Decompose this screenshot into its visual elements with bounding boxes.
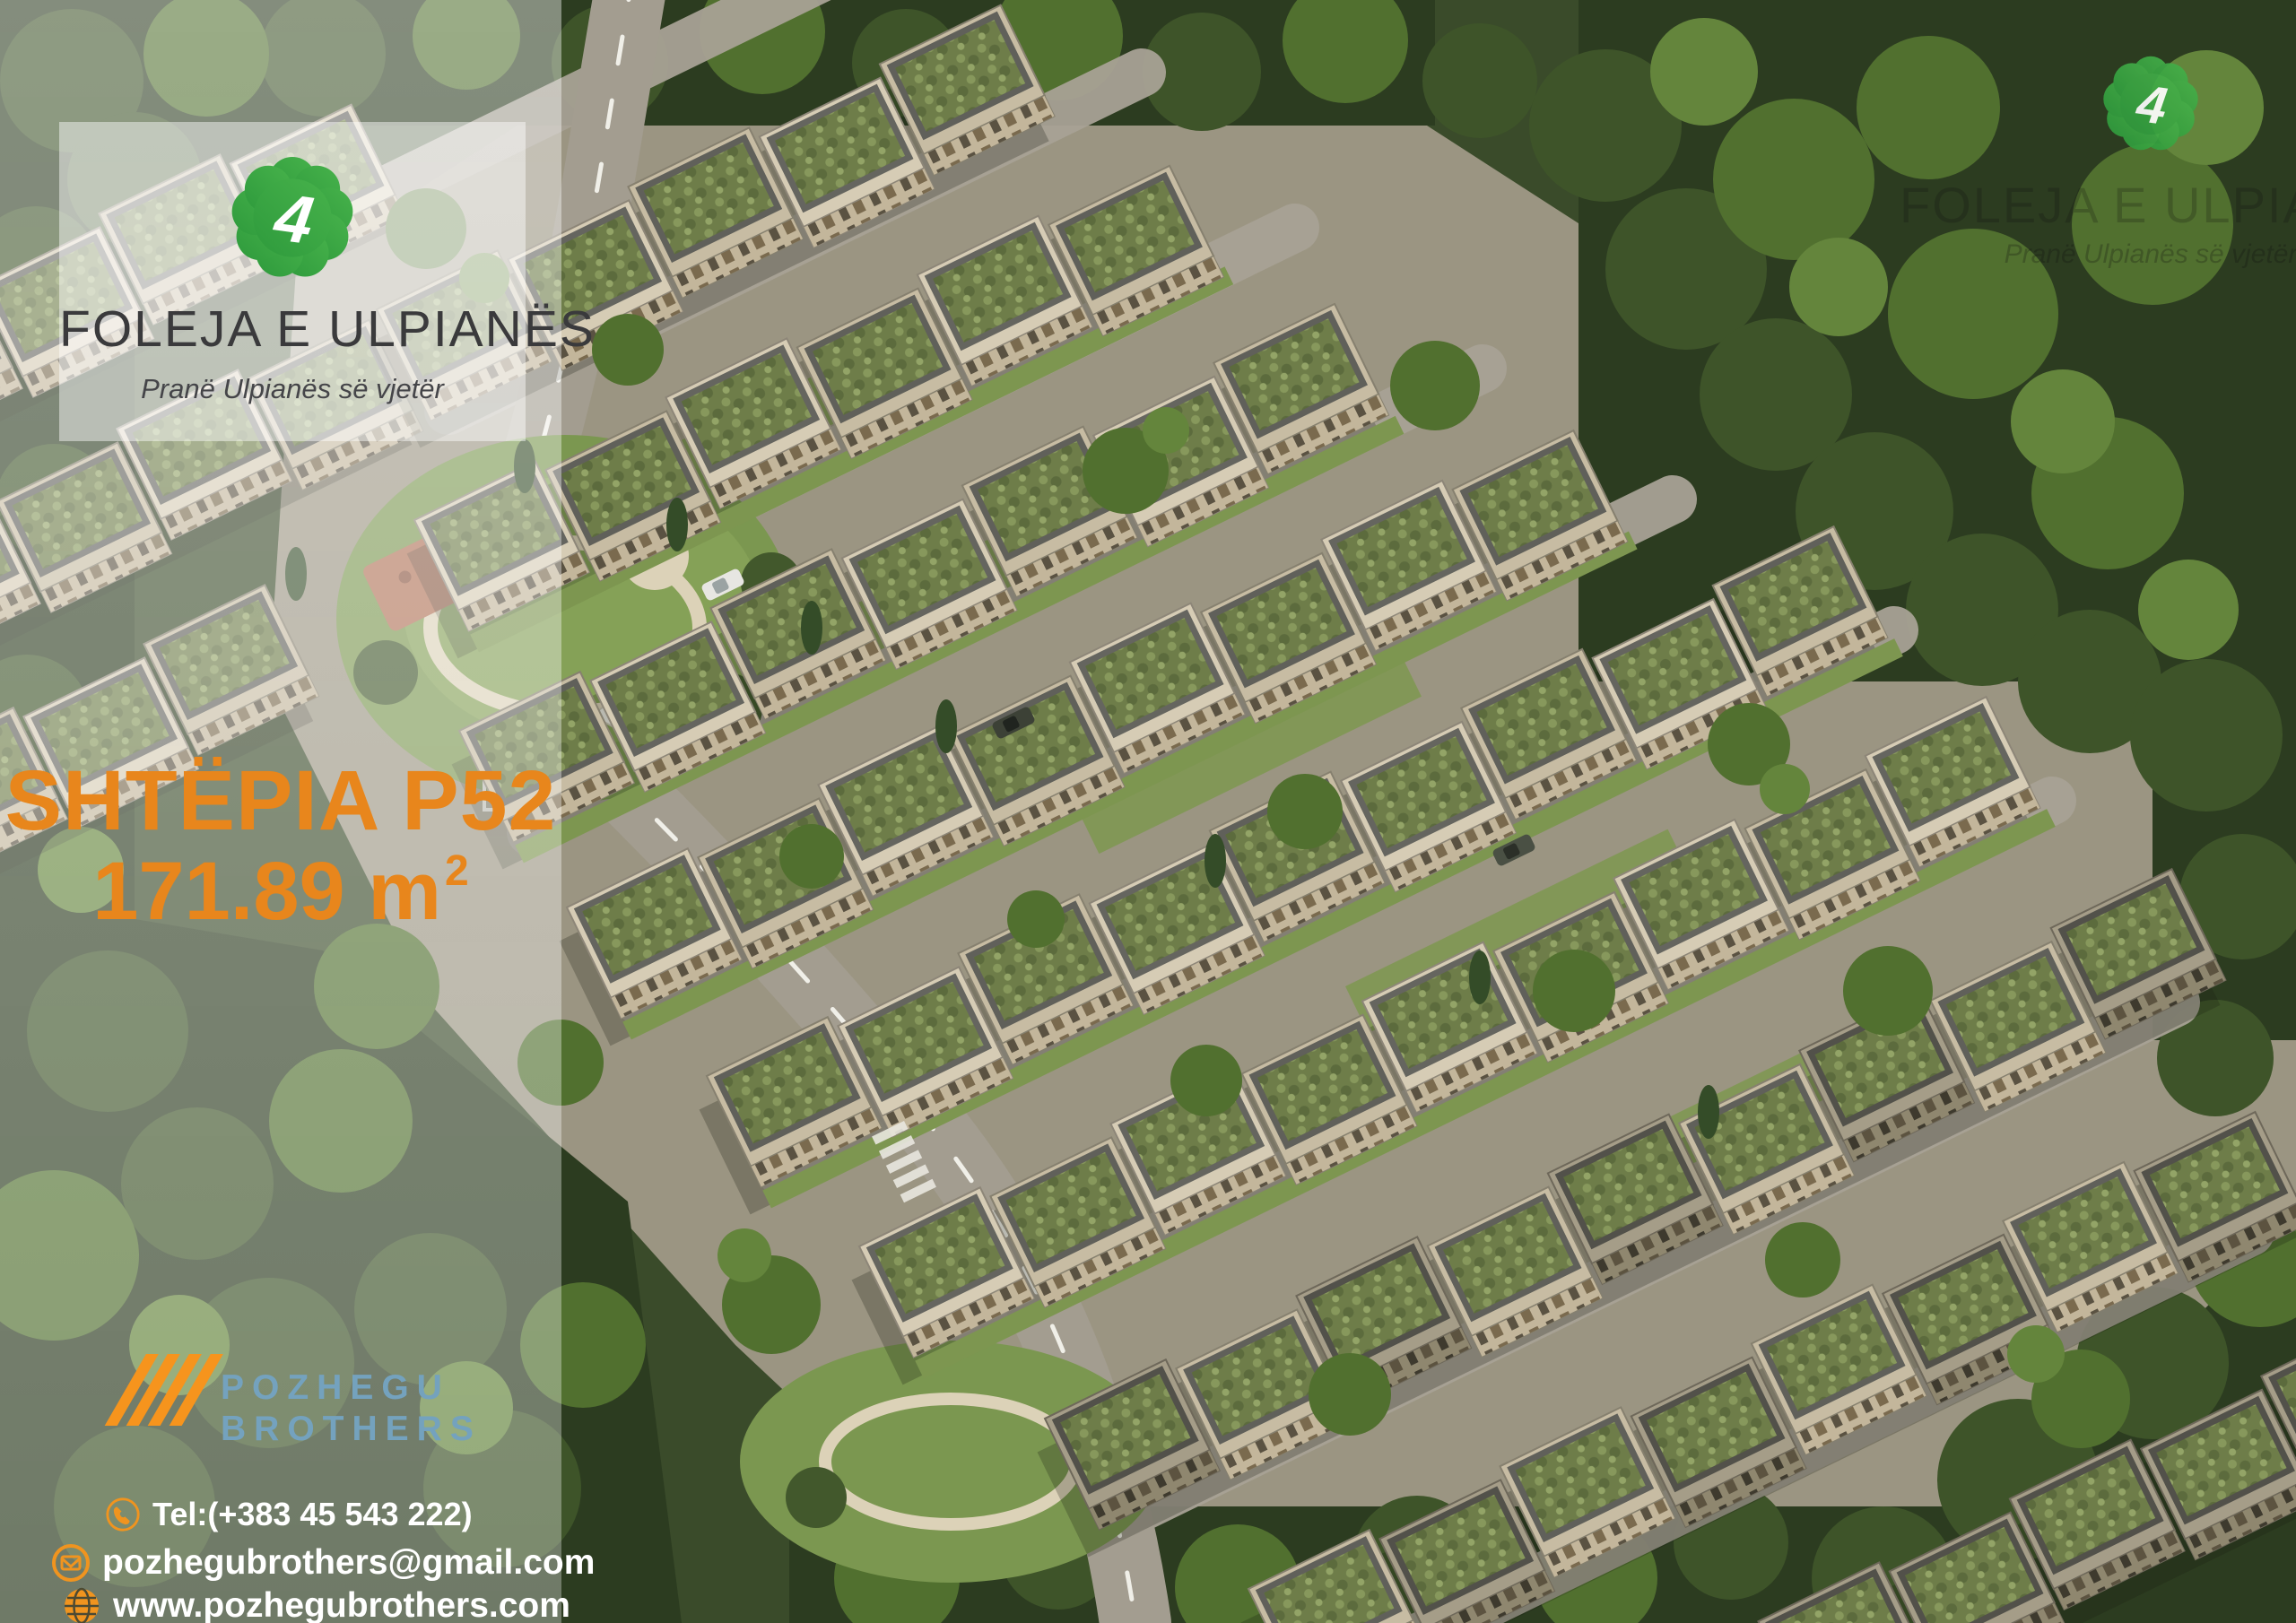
diagonal-stripes-icon (106, 1352, 222, 1429)
top-right-watermark: 4 FOLEJA E ULPIANËS Pranë Ulpianës së vj… (1900, 56, 2296, 270)
area-exponent: 2 (445, 847, 469, 895)
developer-name-top: POZHEGU (221, 1368, 450, 1408)
phone-icon (104, 1496, 142, 1533)
project-logo-card: 4 FOLEJA E ULPIANËS Pranë Ulpianës së vj… (59, 122, 526, 441)
clover-flower-icon: 4 (2102, 56, 2199, 152)
contact-phone-row: Tel:(+383 45 543 222) (104, 1496, 473, 1533)
property-poster: 4 FOLEJA E ULPIANËS Pranë Ulpianës së vj… (0, 0, 2296, 1623)
globe-icon (61, 1585, 102, 1623)
website-url: www.pozhegubrothers.com (113, 1586, 570, 1623)
house-area: 171.89 m2 (0, 847, 561, 936)
contact-website-row: www.pozhegubrothers.com (61, 1585, 570, 1623)
contact-email-row: pozhegubrothers@gmail.com (50, 1542, 595, 1584)
project-tagline: Pranë Ulpianës së vjetër (59, 373, 526, 405)
house-label: SHTËPIA P52 (0, 755, 561, 847)
watermark-tagline: Pranë Ulpianës së vjetër (1900, 239, 2296, 270)
listing-headline: SHTËPIA P52 171.89 m2 (0, 755, 561, 936)
phone-number: Tel:(+383 45 543 222) (152, 1496, 473, 1533)
clover-flower-icon: 4 (230, 156, 354, 280)
area-value: 171.89 m (92, 846, 441, 937)
developer-name-bottom: BROTHERS (221, 1410, 482, 1449)
watermark-project-name: FOLEJA E ULPIANËS (1900, 176, 2296, 234)
developer-logo: POZHEGU BROTHERS (106, 1341, 491, 1463)
project-name: FOLEJA E ULPIANËS (59, 299, 526, 359)
email-icon (50, 1542, 91, 1584)
email-address: pozhegubrothers@gmail.com (102, 1543, 595, 1583)
